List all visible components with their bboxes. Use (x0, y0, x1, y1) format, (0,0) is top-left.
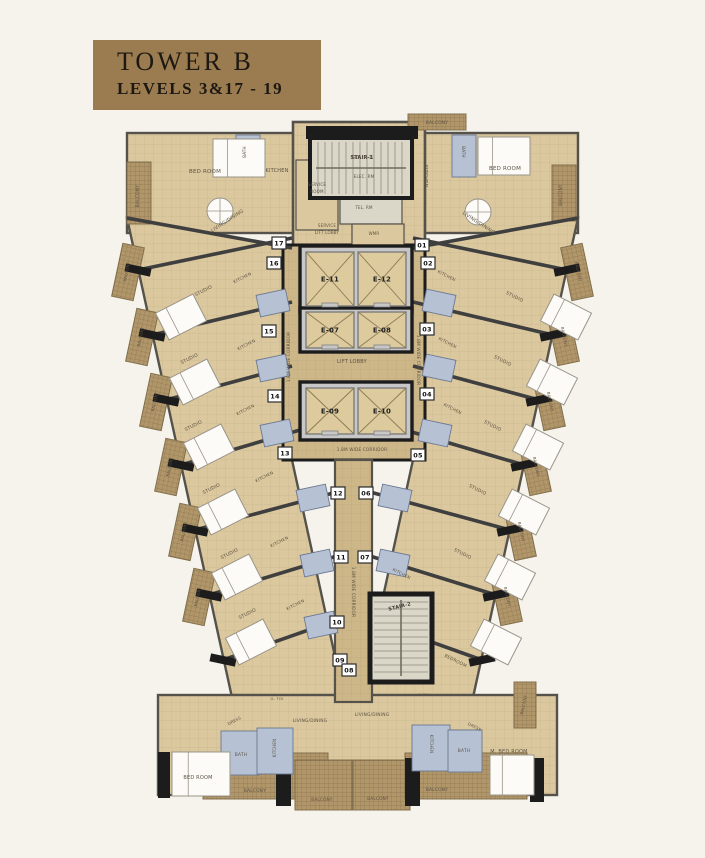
unit-number: 12 (333, 490, 342, 498)
unit-number: 09 (335, 657, 345, 665)
unit-number: 13 (280, 450, 289, 458)
unit-number-badge: 12 (331, 487, 345, 499)
room-label: SERVICE (308, 182, 327, 187)
unit-number: 10 (332, 619, 342, 627)
room-label: 1.8M WIDE CORRIDOR (286, 332, 291, 383)
elevator-E-10: E-10 (358, 388, 406, 435)
room-label: TEL. RM (354, 205, 373, 210)
unit-number-badge: 10 (330, 616, 344, 628)
unit-number: 11 (336, 554, 346, 562)
room-label: BALCONY (558, 184, 563, 206)
floor-plan-canvas: E-11E-12E-07E-08E-09E-10STAIR-1STAIR-2BE… (0, 0, 705, 858)
elevator-label: E-07 (321, 327, 339, 335)
room-label: BATH (461, 146, 466, 157)
bathroom (296, 484, 330, 512)
unit-number-badge: 15 (262, 325, 276, 337)
balcony (353, 760, 410, 810)
room-label: BATH (458, 748, 470, 754)
shear-wall (158, 752, 170, 798)
room-label: G.TOI (418, 692, 430, 697)
elevator-E-09: E-09 (306, 388, 354, 435)
elevator-label: E-11 (321, 276, 339, 284)
unit-number-badge: 03 (420, 323, 434, 335)
bed (490, 755, 534, 795)
stair-STAIR-2: STAIR-2 (370, 594, 432, 682)
elevator-label: E-09 (321, 408, 339, 416)
unit-number-badge: 07 (358, 551, 372, 563)
floor-plan-svg: E-11E-12E-07E-08E-09E-10STAIR-1STAIR-2BE… (0, 0, 705, 858)
room-label: LIVING/DINING (293, 718, 328, 724)
unit-number-badge: 04 (420, 388, 434, 400)
unit-number: 14 (270, 393, 280, 401)
room-label: STAIR-1 (352, 155, 372, 161)
unit-number: 01 (417, 242, 427, 250)
unit-number: 08 (344, 667, 354, 675)
unit-number-badge: 02 (421, 257, 435, 269)
room-label: BALCONY (135, 185, 141, 207)
unit-number: 07 (360, 554, 369, 562)
elevator-label: E-10 (373, 408, 391, 416)
room-label: G. TOI (271, 696, 284, 701)
service-room (340, 198, 402, 224)
unit-number: 05 (413, 452, 423, 460)
stair-STAIR-1: STAIR-1 (310, 138, 412, 198)
unit-number-badge: 05 (411, 449, 425, 461)
unit-number-badge: 11 (334, 551, 348, 563)
title-block: TOWER B LEVELS 3&17 - 19 (93, 40, 321, 110)
room-label: 1.8M WIDE CORRIDOR (351, 567, 356, 618)
unit-number: 06 (361, 490, 371, 498)
elevator-label: E-12 (373, 276, 391, 284)
room-label: 1.8M WIDE CORRIDOR (416, 335, 421, 386)
room-label: KITCHEN (429, 735, 434, 754)
room-label: LIVING/DINING (355, 712, 390, 718)
bed (172, 752, 230, 796)
room-label: BALCONY (311, 797, 333, 802)
room-label: BED ROOM (183, 775, 212, 781)
room-label: KITCHEN (422, 164, 428, 187)
unit-number: 17 (274, 240, 283, 248)
unit-number: 16 (269, 260, 279, 268)
elevator-E-12: E-12 (358, 252, 406, 307)
elevator-E-08: E-08 (358, 312, 406, 349)
room-label: BED ROOM (189, 169, 221, 175)
room-label: LIFT LOBBY (337, 359, 368, 365)
room-label: M. BED ROOM (490, 749, 527, 755)
unit-number-badge: 13 (278, 447, 292, 459)
tower-title: TOWER B (117, 47, 321, 77)
room-label: BATH (242, 146, 247, 157)
room-label: BATH (235, 752, 247, 758)
unit-number: 15 (264, 328, 274, 336)
room-label: 1.8M WIDE CORRIDOR (337, 447, 388, 452)
elevator-E-11: E-11 (306, 252, 354, 307)
unit-number-badge: 17 (272, 237, 286, 249)
room-label: BALCONY (426, 120, 448, 126)
room-label: BALCONY (426, 787, 448, 793)
unit-number-badge: 01 (415, 239, 429, 251)
balcony (295, 760, 352, 810)
room-label: BALCONY (367, 796, 389, 801)
unit-number: 03 (422, 326, 431, 334)
room-label: ELEC. RM (354, 174, 375, 179)
unit-number: 02 (423, 260, 432, 268)
elevator-label: E-08 (373, 327, 391, 335)
room-label: ROOM (310, 189, 324, 194)
unit-number-badge: 14 (268, 390, 282, 402)
room-label: LIFT LOBBY (315, 230, 340, 235)
balcony (552, 165, 576, 221)
unit-number-badge: 16 (267, 257, 281, 269)
floor-plan-page: E-11E-12E-07E-08E-09E-10STAIR-1STAIR-2BE… (0, 0, 705, 858)
room-label: KITCHEN (265, 168, 288, 174)
room-label: BED ROOM (489, 166, 521, 172)
unit-number: 04 (422, 391, 432, 399)
room-label: WMR (369, 231, 380, 236)
room-label: SERVICE (318, 223, 337, 228)
levels-subtitle: LEVELS 3&17 - 19 (117, 79, 321, 99)
elevator-E-07: E-07 (306, 312, 354, 349)
room-label: BALCONY (244, 788, 266, 794)
room-label: KITCHEN (272, 739, 277, 758)
unit-number-badge: 08 (342, 664, 356, 676)
unit-number-badge: 06 (359, 487, 373, 499)
